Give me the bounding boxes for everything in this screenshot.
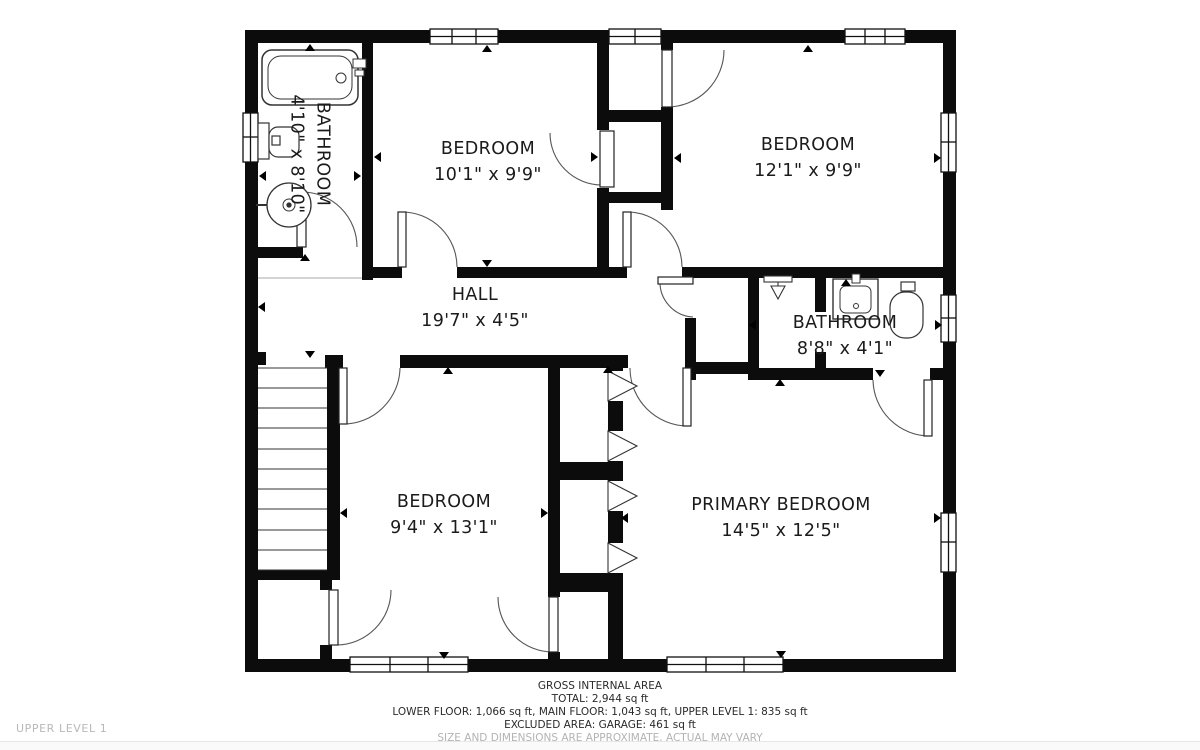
room-name: BEDROOM: [754, 132, 862, 158]
area-summary: GROSS INTERNAL AREA TOTAL: 2,944 sq ft L…: [0, 681, 1200, 746]
room-label-bedroom-bottom-left: BEDROOM 9'4" x 13'1": [390, 489, 498, 542]
room-label-bedroom-top-middle: BEDROOM 10'1" x 9'9": [434, 136, 542, 189]
room-dims: 4'10" x 8'10": [283, 94, 309, 213]
room-dims: 14'5" x 12'5": [691, 518, 871, 544]
floor-level-label: UPPER LEVEL 1: [16, 722, 107, 735]
room-label-bathroom-upper-left: BATHROOM 4'10" x 8'10": [283, 94, 336, 213]
room-name: PRIMARY BEDROOM: [691, 492, 871, 518]
door-leaf: [600, 131, 614, 187]
window-icon: [941, 113, 956, 172]
door-leaf: [662, 50, 672, 107]
room-name: BATHROOM: [793, 310, 897, 336]
door-leaf: [339, 368, 347, 424]
window-icon: [845, 29, 905, 44]
door-leaf: [658, 277, 693, 284]
window-icon: [941, 295, 956, 342]
room-label-bedroom-top-right: BEDROOM 12'1" x 9'9": [754, 132, 862, 185]
door-leaf: [683, 368, 691, 426]
floorplan-page: BATHROOM 4'10" x 8'10" BEDROOM 10'1" x 9…: [0, 0, 1200, 750]
room-dims: 10'1" x 9'9": [434, 162, 542, 188]
window-icon: [243, 113, 258, 162]
window-icon: [350, 657, 468, 672]
room-dims: 9'4" x 13'1": [390, 515, 498, 541]
window-icon: [430, 29, 498, 44]
window-icon: [609, 29, 661, 44]
window-icon: [667, 657, 783, 672]
door-leaf: [329, 590, 338, 645]
excluded-area: EXCLUDED AREA: GARAGE: 461 sq ft: [0, 720, 1200, 731]
room-dims: 8'8" x 4'1": [793, 336, 897, 362]
room-name: HALL: [421, 282, 529, 308]
room-name: BEDROOM: [390, 489, 498, 515]
room-label-primary-bedroom: PRIMARY BEDROOM 14'5" x 12'5": [691, 492, 871, 545]
window-icon: [941, 513, 956, 572]
door-leaf: [549, 597, 558, 652]
door-leaf: [924, 380, 932, 436]
shower-icon: [764, 276, 792, 299]
door-leaf: [623, 212, 631, 267]
floor-areas: LOWER FLOOR: 1,066 sq ft, MAIN FLOOR: 1,…: [0, 707, 1200, 718]
room-name: BATHROOM: [309, 94, 335, 213]
gross-area-title: GROSS INTERNAL AREA: [0, 681, 1200, 692]
room-dims: 19'7" x 4'5": [421, 308, 529, 334]
door-leaf: [398, 212, 406, 267]
room-label-hall: HALL 19'7" x 4'5": [421, 282, 529, 335]
room-name: BEDROOM: [434, 136, 542, 162]
room-dims: 12'1" x 9'9": [754, 158, 862, 184]
room-label-bathroom-right: BATHROOM 8'8" x 4'1": [793, 310, 897, 363]
floorplan-drawing: [0, 0, 1200, 750]
total-area: TOTAL: 2,944 sq ft: [0, 694, 1200, 705]
bottom-strip: [0, 741, 1200, 750]
